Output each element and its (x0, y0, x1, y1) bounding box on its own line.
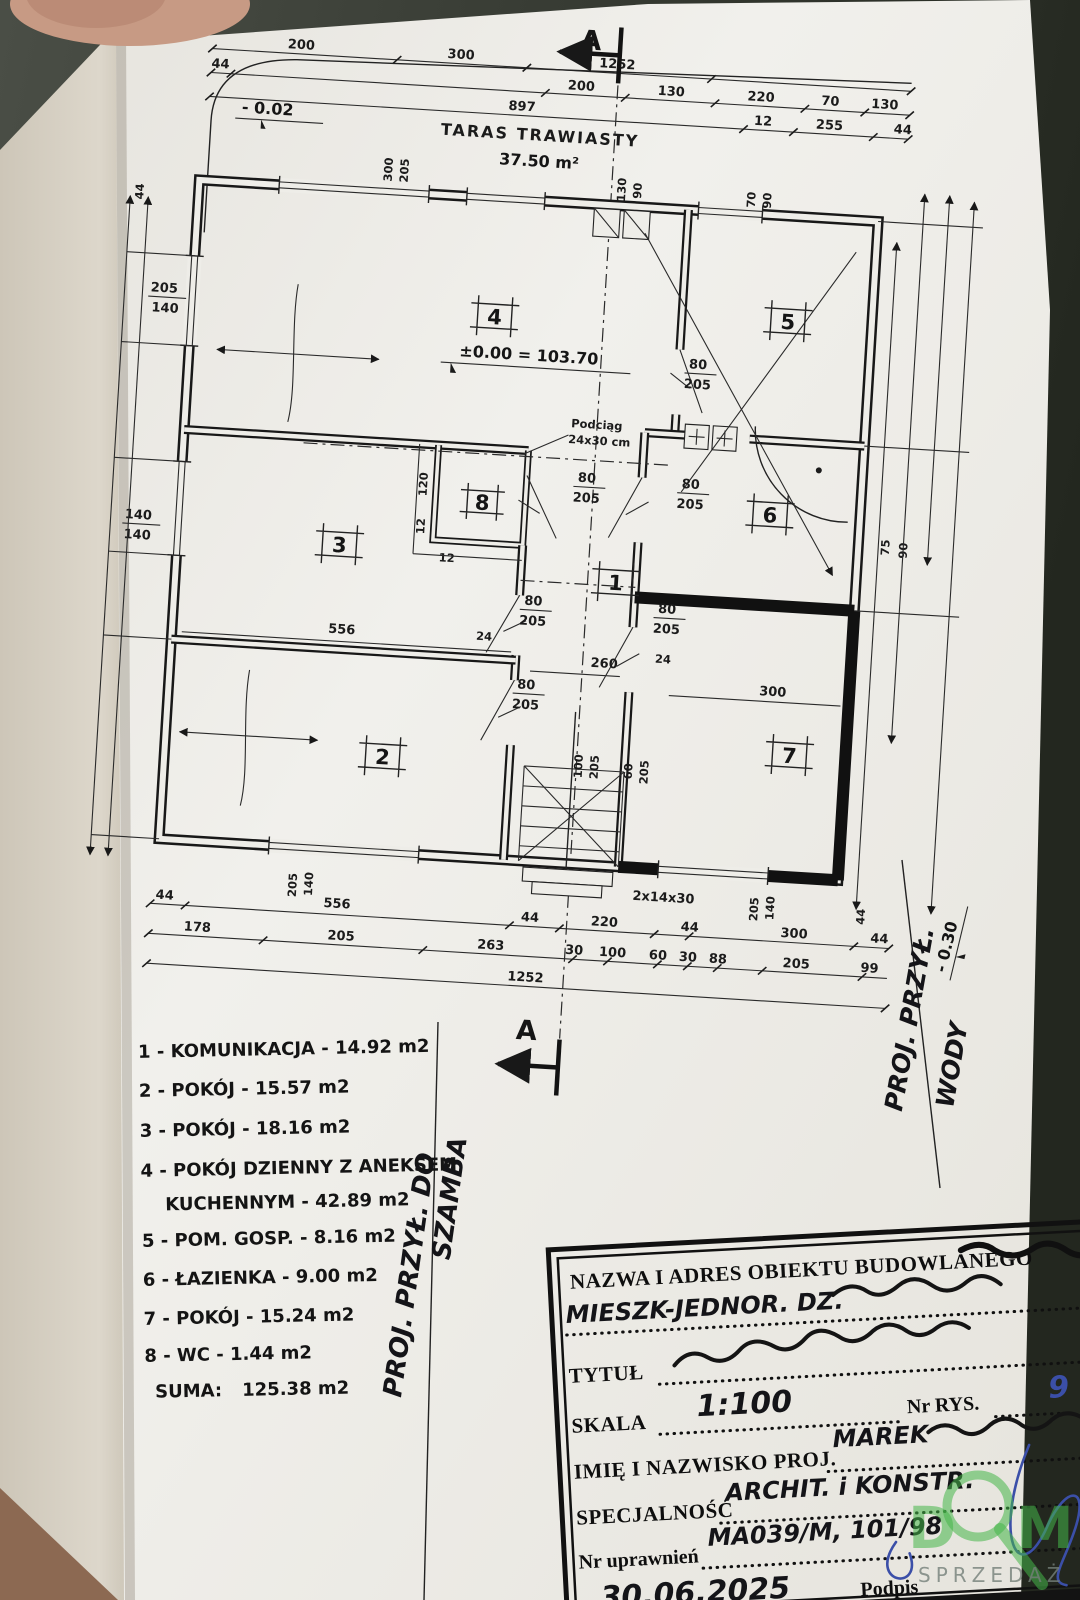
dim-label: 200 (567, 78, 595, 95)
svg-text:205: 205 (652, 622, 680, 639)
dim-label: 300 (447, 47, 475, 64)
svg-text:205: 205 (397, 158, 412, 183)
svg-text:205: 205 (636, 760, 651, 785)
svg-text:178: 178 (183, 919, 211, 936)
legend-suma-value: 125.38 m2 (242, 1378, 349, 1401)
legend-item: 3 - POKÓJ - 18.16 m2 (139, 1116, 350, 1142)
svg-text:205: 205 (327, 928, 355, 945)
svg-text:205: 205 (511, 697, 539, 714)
svg-text:556: 556 (323, 896, 351, 913)
dim-label: 44 (211, 57, 230, 73)
legend-item: 8 - WC - 1.44 m2 (144, 1342, 312, 1367)
svg-text:30: 30 (678, 950, 697, 966)
floorplan-photo: 200 300 1252 44 200 130 220 70 130 897 1… (0, 0, 1080, 1600)
svg-text:260: 260 (590, 656, 618, 673)
svg-text:80: 80 (577, 471, 596, 487)
svg-text:90: 90 (760, 192, 775, 209)
svg-text:A: A (515, 1015, 538, 1047)
photo-stage: 200 300 1252 44 200 130 220 70 130 897 1… (0, 0, 1080, 1600)
svg-text:205: 205 (150, 280, 178, 297)
svg-text:44: 44 (132, 183, 147, 200)
svg-text:80: 80 (658, 602, 677, 618)
svg-text:12: 12 (438, 550, 455, 565)
svg-text:80: 80 (517, 677, 536, 693)
svg-text:24: 24 (476, 629, 493, 644)
legend-item: 2 - POKÓJ - 15.57 m2 (139, 1076, 350, 1102)
svg-text:4: 4 (487, 305, 503, 330)
svg-text:3: 3 (331, 533, 347, 558)
dim-label: 200 (287, 37, 315, 54)
dim-label: 44 (893, 122, 912, 138)
svg-text:44: 44 (680, 920, 699, 936)
svg-text:220: 220 (590, 914, 618, 931)
svg-text:130: 130 (614, 177, 629, 202)
stamp-scale-value: 1:100 (696, 1384, 793, 1424)
svg-text:205: 205 (782, 956, 810, 973)
watermark-subtext: SPRZEDAŻ (918, 1563, 1065, 1587)
svg-text:300: 300 (780, 926, 808, 943)
svg-text:300: 300 (759, 684, 787, 701)
stamp-designer-name: MAREK (832, 1420, 932, 1453)
svg-text:205: 205 (746, 897, 761, 922)
dim-label: 897 (508, 99, 536, 116)
svg-text:205: 205 (683, 377, 711, 394)
svg-text:5: 5 (780, 310, 796, 335)
svg-text:60: 60 (621, 763, 636, 780)
svg-text:205: 205 (519, 613, 547, 630)
svg-text:140: 140 (762, 896, 777, 921)
svg-text:24: 24 (655, 652, 672, 667)
svg-text:44: 44 (853, 908, 868, 925)
legend-suma-label: SUMA: (155, 1380, 222, 1402)
svg-text:205: 205 (676, 497, 704, 514)
svg-text:140: 140 (151, 300, 179, 317)
svg-text:70: 70 (744, 191, 759, 208)
svg-text:205: 205 (572, 490, 600, 507)
svg-text:75: 75 (878, 539, 893, 556)
svg-text:8: 8 (474, 490, 490, 515)
svg-text:44: 44 (521, 910, 540, 926)
svg-text:90: 90 (630, 182, 645, 199)
svg-text:263: 263 (477, 937, 505, 954)
svg-text:300: 300 (381, 157, 396, 182)
svg-text:100: 100 (571, 754, 586, 779)
dim-label: 130 (871, 97, 899, 114)
svg-text:80: 80 (524, 594, 543, 610)
svg-text:44: 44 (870, 931, 889, 947)
svg-text:80: 80 (681, 477, 700, 493)
stamp-label-nr-rys: Nr RYS. (906, 1393, 979, 1419)
stamp-drawing-number: 9 (1047, 1370, 1070, 1406)
svg-text:88: 88 (708, 952, 727, 968)
svg-text:2: 2 (374, 745, 390, 770)
dim-label: 70 (821, 94, 840, 110)
dim-label: 255 (815, 118, 843, 135)
dim-label: 220 (747, 89, 775, 106)
svg-text:1252: 1252 (507, 969, 544, 986)
svg-text:205: 205 (285, 873, 300, 898)
svg-text:- 0.02: - 0.02 (241, 97, 294, 119)
svg-text:44: 44 (155, 888, 174, 904)
svg-text:80: 80 (689, 357, 708, 373)
svg-text:140: 140 (301, 872, 316, 897)
svg-text:1: 1 (608, 571, 624, 596)
svg-text:30: 30 (565, 943, 584, 959)
svg-text:205: 205 (587, 755, 602, 780)
stamp-label-tytul: TYTUŁ (568, 1360, 644, 1388)
legend-item: 7 - POKÓJ - 15.24 m2 (143, 1303, 354, 1329)
svg-text:6: 6 (762, 503, 778, 528)
stamp-label-podpis: Podpis (860, 1576, 919, 1600)
watermark-letter-m: M (1016, 1494, 1074, 1562)
svg-text:99: 99 (860, 961, 879, 977)
svg-text:60: 60 (648, 948, 667, 964)
svg-text:100: 100 (599, 945, 627, 962)
stamp-label-skala: SKALA (571, 1410, 647, 1438)
svg-text:556: 556 (328, 622, 356, 639)
dim-label: 130 (657, 84, 685, 101)
dim-label: 12 (754, 114, 773, 130)
svg-text:7: 7 (781, 744, 797, 769)
